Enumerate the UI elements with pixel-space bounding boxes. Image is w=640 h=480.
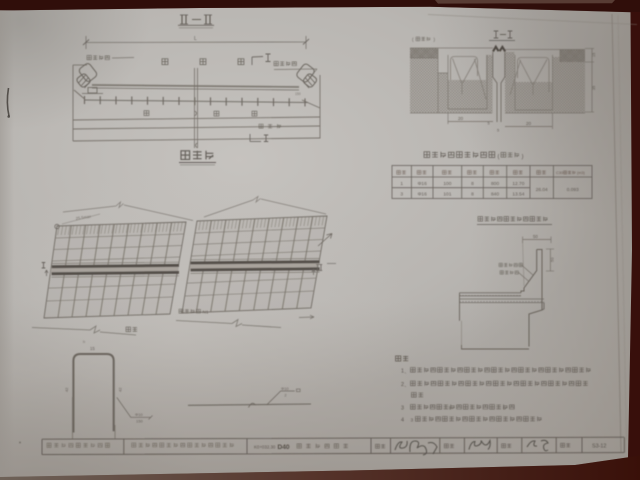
svg-text:): ) xyxy=(522,154,524,160)
svg-text:3: 3 xyxy=(400,192,403,198)
svg-text:b: b xyxy=(449,406,452,411)
svg-text:50: 50 xyxy=(550,257,555,262)
svg-text:b: b xyxy=(83,340,85,344)
svg-text:15: 15 xyxy=(90,346,95,351)
svg-text:、: 、 xyxy=(405,369,409,374)
svg-text:800: 800 xyxy=(491,181,499,187)
svg-text:、: 、 xyxy=(405,383,409,388)
svg-text:20: 20 xyxy=(526,121,532,126)
svg-text:8: 8 xyxy=(471,192,474,198)
svg-text:100: 100 xyxy=(443,181,451,187)
svg-text:5: 5 xyxy=(497,129,499,133)
svg-text:S3-12: S3-12 xyxy=(592,444,606,450)
svg-text:3: 3 xyxy=(411,418,414,424)
svg-text:42: 42 xyxy=(64,387,69,392)
svg-text:0.093: 0.093 xyxy=(567,187,579,193)
svg-text:Φ10: Φ10 xyxy=(135,412,143,417)
svg-text:(m3): (m3) xyxy=(577,171,586,175)
svg-text:5: 5 xyxy=(488,122,490,126)
svg-text:2: 2 xyxy=(285,394,287,398)
svg-text:840: 840 xyxy=(491,192,499,198)
svg-text:3: 3 xyxy=(401,406,404,412)
svg-text:N1: N1 xyxy=(203,310,209,315)
svg-text:8: 8 xyxy=(471,181,474,187)
svg-text:L: L xyxy=(194,36,197,42)
svg-text:4: 4 xyxy=(401,418,404,424)
svg-text:C30: C30 xyxy=(556,170,564,175)
svg-text:150: 150 xyxy=(295,92,301,96)
svg-text:L: L xyxy=(503,406,506,411)
svg-text:Φ10: Φ10 xyxy=(281,386,289,391)
svg-text:Φ16: Φ16 xyxy=(418,181,427,187)
svg-text:1: 1 xyxy=(400,181,403,187)
svg-text:Φ16: Φ16 xyxy=(418,192,427,198)
svg-text:26.04: 26.04 xyxy=(536,187,548,193)
svg-text:D40: D40 xyxy=(278,444,290,451)
svg-text:42: 42 xyxy=(118,387,123,392)
svg-text:15: 15 xyxy=(592,53,596,57)
svg-text:20: 20 xyxy=(458,116,464,121)
svg-text:12.70: 12.70 xyxy=(512,181,524,187)
svg-text:35: 35 xyxy=(592,86,596,90)
svg-text:50: 50 xyxy=(533,234,538,239)
svg-text:101: 101 xyxy=(443,192,451,198)
svg-text:K0+032.30: K0+032.30 xyxy=(254,444,276,449)
svg-text:13.54: 13.54 xyxy=(512,192,524,198)
svg-text:150: 150 xyxy=(136,419,143,424)
svg-text:(: ( xyxy=(498,154,500,160)
